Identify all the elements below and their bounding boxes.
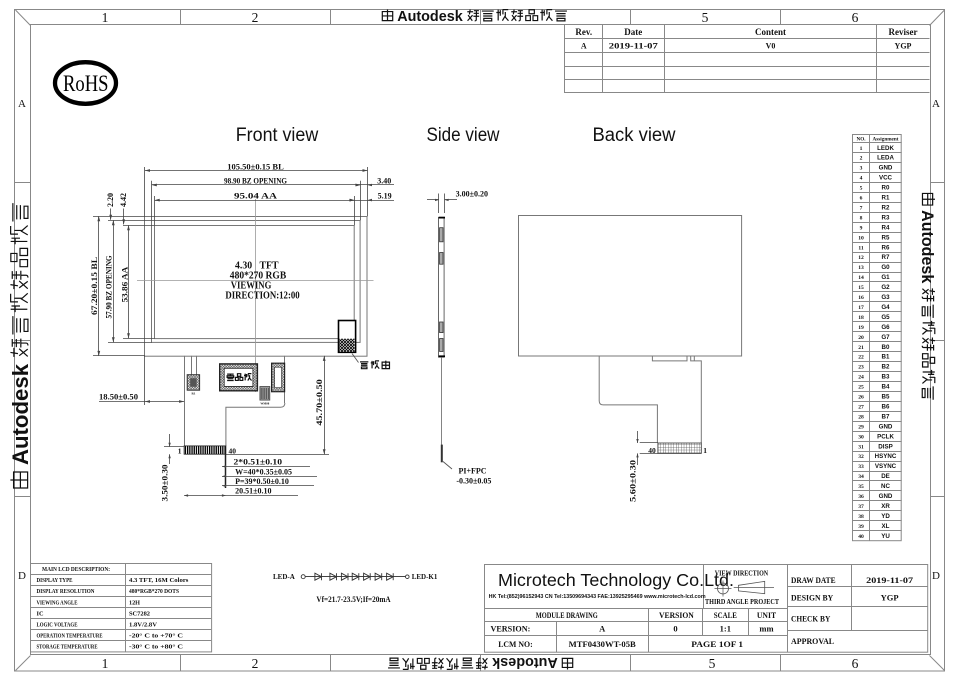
svg-text:24: 24	[858, 375, 864, 381]
svg-text:B5: B5	[882, 394, 890, 401]
svg-text:19: 19	[858, 325, 864, 331]
svg-text:4.42: 4.42	[119, 193, 128, 207]
svg-text:LED-A: LED-A	[273, 573, 295, 581]
svg-text:YU: YU	[881, 533, 890, 540]
svg-text:2: 2	[252, 656, 259, 671]
svg-text:26: 26	[858, 395, 864, 401]
svg-text:PAGE 1OF 1: PAGE 1OF 1	[691, 639, 743, 649]
svg-text:33: 33	[858, 464, 864, 470]
svg-text:5: 5	[709, 656, 716, 671]
svg-text:D: D	[932, 570, 940, 582]
svg-text:4.3 TFT, 16M Colors: 4.3 TFT, 16M Colors	[129, 577, 189, 584]
svg-text:GND: GND	[879, 493, 893, 500]
svg-text:DISPLAY TYPE: DISPLAY TYPE	[37, 577, 73, 584]
svg-text:18.50±0.50: 18.50±0.50	[99, 392, 138, 401]
svg-text:2: 2	[860, 156, 863, 162]
svg-text:B7: B7	[882, 413, 890, 420]
svg-text:2.20: 2.20	[106, 193, 115, 207]
svg-text:R6: R6	[882, 244, 890, 251]
svg-text:YGP: YGP	[881, 593, 899, 603]
svg-text:23: 23	[858, 365, 864, 371]
svg-text:21: 21	[858, 345, 864, 351]
svg-text:VCC: VCC	[879, 175, 893, 182]
svg-text:DISPLAY RESOLUTION: DISPLAY RESOLUTION	[37, 588, 95, 595]
svg-text:5: 5	[860, 186, 863, 192]
svg-text:Date: Date	[624, 27, 642, 37]
svg-text:6: 6	[860, 196, 863, 202]
svg-text:2019-11-07: 2019-11-07	[609, 42, 658, 51]
svg-text:1: 1	[102, 10, 109, 25]
svg-text:DESIGN BY: DESIGN BY	[791, 593, 833, 603]
svg-text:DIRECTION:12:00: DIRECTION:12:00	[225, 290, 299, 302]
svg-text:G6: G6	[881, 324, 890, 331]
svg-text:B2: B2	[882, 364, 890, 371]
svg-text:8: 8	[860, 215, 863, 221]
svg-text:G2: G2	[881, 284, 890, 291]
svg-text:11: 11	[858, 245, 863, 251]
svg-text:G5: G5	[881, 314, 890, 321]
svg-text:7: 7	[860, 205, 863, 211]
svg-text:5.60±0.30: 5.60±0.30	[628, 460, 637, 502]
svg-text:39: 39	[858, 524, 864, 530]
svg-text:G3: G3	[881, 294, 890, 301]
svg-text:-30° C to +80° C: -30° C to +80° C	[129, 643, 183, 650]
svg-text:29: 29	[858, 424, 864, 430]
svg-text:G4: G4	[881, 304, 890, 311]
svg-text:LEDK: LEDK	[877, 145, 894, 152]
svg-text:XL: XL	[882, 523, 890, 530]
svg-text:DISP: DISP	[878, 443, 892, 450]
svg-text:LCM NO:: LCM NO:	[498, 639, 533, 649]
svg-text:98.90 BZ OPENING: 98.90 BZ OPENING	[224, 176, 287, 185]
svg-text:12: 12	[858, 255, 864, 261]
svg-text:10: 10	[858, 235, 864, 241]
svg-text:5: 5	[702, 10, 709, 25]
svg-text:NO.: NO.	[856, 137, 866, 143]
svg-text:Autodesk: Autodesk	[8, 363, 33, 465]
svg-text:HSYNC: HSYNC	[875, 453, 897, 460]
svg-text:30: 30	[858, 434, 864, 440]
svg-text:APPROVAL: APPROVAL	[791, 636, 834, 646]
svg-text:Side view: Side view	[427, 125, 500, 146]
svg-text:2019-11-07: 2019-11-07	[866, 575, 914, 585]
svg-text:-0.30±0.05: -0.30±0.05	[456, 476, 491, 485]
svg-text:G0: G0	[881, 264, 890, 271]
svg-text:MTF0430WT-05B: MTF0430WT-05B	[569, 639, 636, 649]
svg-text:32: 32	[858, 454, 864, 460]
svg-text:A: A	[18, 98, 26, 110]
svg-text:Autodesk: Autodesk	[918, 210, 936, 284]
svg-text:3.00±0.20: 3.00±0.20	[456, 190, 488, 199]
svg-text:STORAGE TEMPERATURE: STORAGE TEMPERATURE	[37, 643, 98, 650]
svg-text:34: 34	[858, 474, 864, 480]
svg-text:12H: 12H	[129, 599, 141, 606]
svg-text:27: 27	[858, 404, 864, 410]
svg-text:1: 1	[703, 446, 707, 455]
svg-text:9: 9	[860, 225, 863, 231]
svg-text:31: 31	[858, 444, 864, 450]
svg-text:PI+FPC: PI+FPC	[458, 466, 486, 475]
svg-text:1:1: 1:1	[720, 624, 731, 634]
svg-text:14: 14	[858, 275, 864, 281]
svg-text:Content: Content	[755, 27, 786, 37]
svg-text:R4: R4	[882, 224, 890, 231]
svg-text:SCALE: SCALE	[714, 610, 737, 620]
svg-text:DE: DE	[881, 473, 890, 480]
svg-text:A: A	[581, 42, 587, 51]
svg-text:GND: GND	[879, 423, 893, 430]
svg-text:THIRD ANGLE PROJECT: THIRD ANGLE PROJECT	[705, 597, 780, 606]
svg-text:1: 1	[102, 656, 109, 671]
svg-text:22: 22	[858, 355, 864, 361]
svg-text:Assignment: Assignment	[873, 137, 899, 143]
svg-text:28: 28	[858, 414, 864, 420]
svg-text:38: 38	[858, 514, 864, 520]
svg-text:4: 4	[860, 176, 863, 182]
svg-text:37: 37	[858, 504, 864, 510]
svg-text:20.51±0.10: 20.51±0.10	[235, 487, 271, 496]
svg-text:2*0.51±0.10: 2*0.51±0.10	[234, 458, 283, 467]
svg-text:3.50±0.30: 3.50±0.30	[160, 465, 169, 502]
svg-text:YGP: YGP	[895, 42, 912, 51]
svg-text:Autodesk: Autodesk	[397, 9, 463, 25]
svg-text:1: 1	[860, 146, 863, 152]
svg-text:mm: mm	[759, 624, 773, 634]
svg-text:35: 35	[858, 484, 864, 490]
svg-text:20: 20	[858, 335, 864, 341]
svg-text:A: A	[599, 624, 606, 634]
svg-text:13: 13	[858, 265, 864, 271]
svg-text:VSYNC: VSYNC	[875, 463, 897, 470]
svg-text:YD: YD	[881, 513, 890, 520]
svg-text:3: 3	[860, 166, 863, 172]
svg-text:D: D	[18, 570, 26, 582]
svg-text:G7: G7	[881, 334, 890, 341]
svg-text:B0: B0	[882, 344, 890, 351]
svg-text:53.86 AA: 53.86 AA	[120, 267, 129, 303]
svg-text:105.50±0.15 BL: 105.50±0.15 BL	[227, 162, 284, 171]
svg-text:Reviser: Reviser	[889, 27, 918, 37]
svg-text:G1: G1	[881, 274, 890, 281]
svg-text:VERSION: VERSION	[659, 610, 695, 620]
svg-text:3.40: 3.40	[377, 177, 391, 186]
svg-text:SC7282: SC7282	[129, 610, 151, 617]
svg-text:17: 17	[858, 305, 864, 311]
svg-text:Back view: Back view	[593, 125, 676, 146]
svg-text:Vf=21.7-23.5V;If=20mA: Vf=21.7-23.5V;If=20mA	[316, 595, 390, 604]
svg-text:15: 15	[858, 285, 864, 291]
svg-text:V0: V0	[766, 42, 776, 51]
svg-text:6: 6	[852, 10, 859, 25]
svg-text:IC: IC	[37, 610, 44, 617]
svg-text:40: 40	[229, 446, 237, 455]
svg-text:Autodesk: Autodesk	[491, 654, 557, 670]
svg-text:LEDA: LEDA	[877, 155, 894, 162]
svg-text:B4: B4	[882, 384, 890, 391]
svg-text:CHECK BY: CHECK BY	[791, 614, 830, 624]
svg-text:480*RGB*270 DOTS: 480*RGB*270 DOTS	[129, 588, 179, 595]
svg-text:W=40*0.35±0.05: W=40*0.35±0.05	[235, 467, 292, 476]
svg-text:B3: B3	[882, 374, 890, 381]
svg-text:RoHS: RoHS	[63, 71, 109, 96]
svg-text:95.04 AA: 95.04 AA	[234, 191, 277, 200]
svg-text:0: 0	[673, 624, 677, 634]
svg-text:VERSION:: VERSION:	[491, 624, 531, 634]
svg-text:OPERATION TEMPERATURE: OPERATION TEMPERATURE	[37, 632, 103, 639]
svg-text:36: 36	[858, 494, 864, 500]
svg-text:PCLK: PCLK	[877, 433, 894, 440]
svg-text:R1: R1	[882, 195, 890, 202]
svg-text:VIEW DIRECTION: VIEW DIRECTION	[715, 569, 769, 578]
svg-text:6: 6	[852, 656, 859, 671]
svg-text:Microtech Technology Co.Ltd.: Microtech Technology Co.Ltd.	[498, 570, 734, 590]
svg-text:-20° C to +70° C: -20° C to +70° C	[129, 632, 183, 639]
svg-text:Front view: Front view	[236, 125, 319, 146]
svg-text:NC: NC	[881, 483, 890, 490]
svg-text:67.20±0.15 BL: 67.20±0.15 BL	[90, 257, 99, 315]
svg-text:GND: GND	[879, 165, 893, 172]
svg-text:18: 18	[858, 315, 864, 321]
svg-text:25: 25	[858, 385, 864, 391]
svg-text:A: A	[932, 98, 940, 110]
svg-text:LOGIC VOLTAGE: LOGIC VOLTAGE	[37, 621, 78, 628]
svg-text:VIEWING ANGLE: VIEWING ANGLE	[37, 599, 78, 606]
svg-text:R5: R5	[882, 234, 890, 241]
svg-text:57.90 BZ OPENING: 57.90 BZ OPENING	[104, 256, 113, 319]
svg-text:MAIN LCD DESCRIPTION:: MAIN LCD DESCRIPTION:	[42, 566, 110, 573]
svg-text:P=39*0.50±0.10: P=39*0.50±0.10	[235, 477, 289, 486]
svg-text:1: 1	[178, 446, 182, 455]
svg-text:LED-K1: LED-K1	[412, 573, 438, 581]
svg-text:XR: XR	[881, 503, 890, 510]
svg-text:HK Tel:(852)96152943 CN Tel:1: HK Tel:(852)96152943 CN Tel:13509694343 …	[489, 594, 706, 600]
svg-text:5.19: 5.19	[378, 192, 392, 201]
svg-text:R7: R7	[882, 254, 890, 261]
svg-text:R3: R3	[882, 214, 890, 221]
svg-text:2: 2	[252, 10, 259, 25]
svg-text:R1: R1	[192, 392, 196, 396]
svg-text:MODULE DRAWING: MODULE DRAWING	[536, 610, 598, 620]
svg-text:Rev.: Rev.	[575, 27, 592, 37]
svg-text:1.8V/2.8V: 1.8V/2.8V	[129, 621, 157, 628]
svg-text:45.70±0.50: 45.70±0.50	[315, 379, 324, 425]
svg-text:16: 16	[858, 295, 864, 301]
svg-text:B1: B1	[882, 354, 890, 361]
svg-text:R2: R2	[882, 204, 890, 211]
svg-text:B6: B6	[882, 403, 890, 410]
svg-text:WM08: WM08	[260, 402, 269, 406]
svg-text:40: 40	[858, 534, 864, 540]
svg-text:UNIT: UNIT	[757, 610, 776, 620]
svg-text:R0: R0	[882, 185, 890, 192]
svg-text:DRAW DATE: DRAW DATE	[791, 575, 836, 585]
